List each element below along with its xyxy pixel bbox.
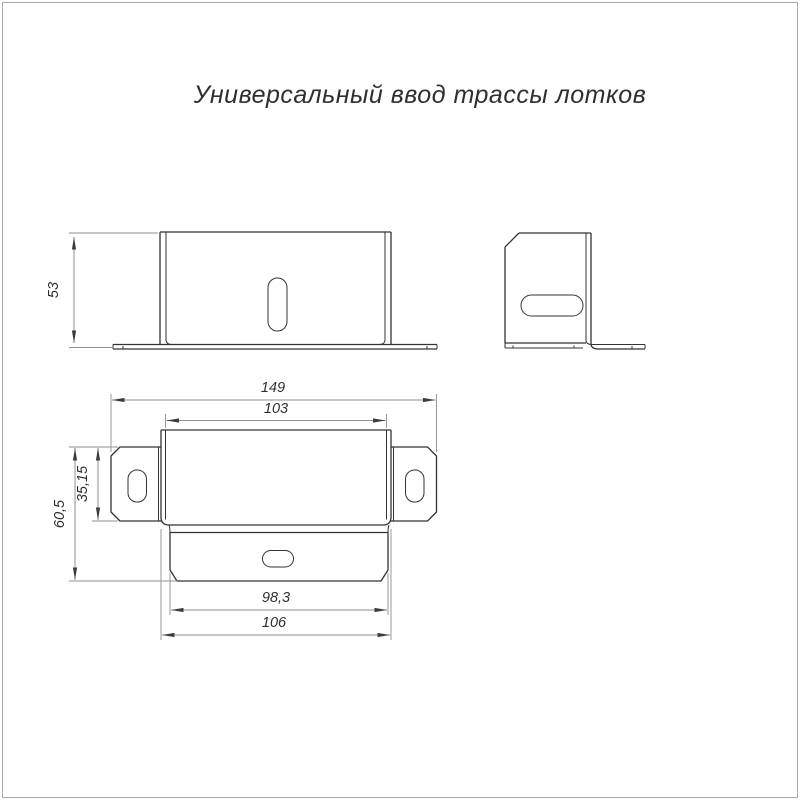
side-view: [505, 233, 645, 349]
dim-label-inner-width-103: 103: [264, 401, 288, 417]
dim-label-overall-length: 60,5: [52, 499, 68, 528]
technical-drawing: Универсальный ввод трассы лотков: [0, 0, 800, 800]
front-slot: [268, 278, 287, 331]
dim-label-body-width: 106: [262, 615, 287, 631]
right-wing: [391, 447, 437, 521]
side-slot: [521, 295, 583, 316]
front-view-dimensions: 53: [46, 233, 158, 348]
dim-label-flap-width: 98,3: [262, 590, 290, 606]
flap-slot: [263, 551, 294, 568]
drawing-title: Универсальный ввод трассы лотков: [193, 81, 647, 109]
drawing-canvas: Универсальный ввод трассы лотков: [0, 0, 800, 800]
plan-view-outline: [111, 430, 437, 581]
plan-view: 149 103 35,15 60,5 98,3: [52, 380, 437, 640]
dim-label-height-53: 53: [46, 282, 62, 298]
front-view: 53: [46, 232, 437, 349]
right-wing-slot: [406, 470, 425, 502]
left-wing-slot: [128, 470, 147, 502]
plan-view-dimensions: 149 103 35,15 60,5 98,3: [52, 380, 437, 640]
front-view-outline: [113, 232, 437, 349]
dim-label-overall-width-149: 149: [261, 380, 285, 396]
dim-label-wing-height: 35,15: [75, 465, 91, 502]
side-view-outline: [505, 233, 645, 349]
bottom-flap: [170, 533, 388, 582]
left-wing: [111, 447, 161, 521]
